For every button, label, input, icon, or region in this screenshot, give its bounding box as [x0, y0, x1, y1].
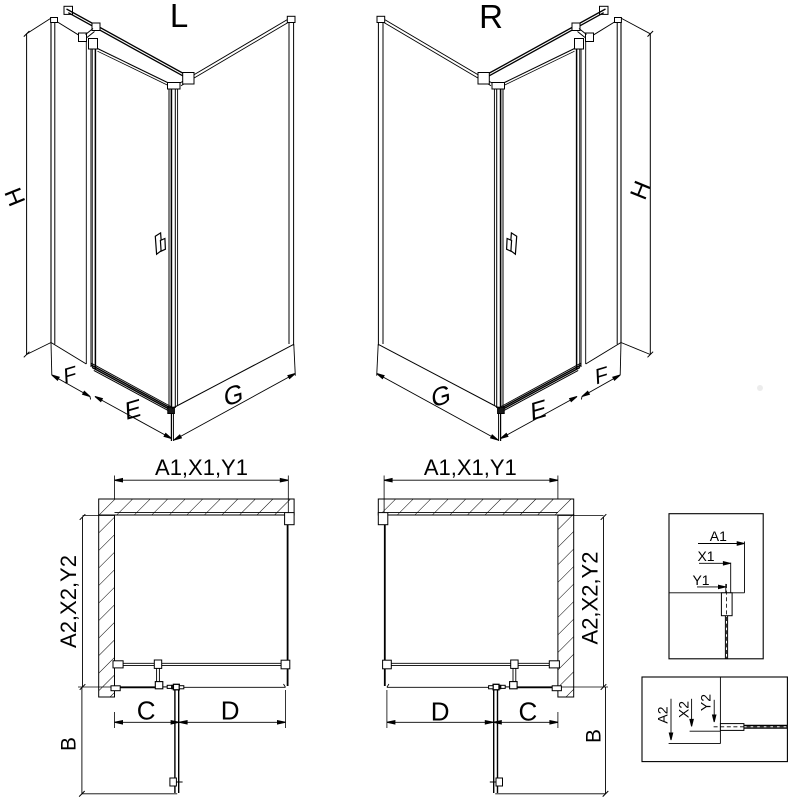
svg-text:X2: X2 [676, 701, 692, 718]
svg-text:F: F [595, 361, 609, 390]
svg-text:B: B [58, 737, 81, 751]
svg-text:D: D [221, 696, 240, 726]
svg-text:A2,X2,Y2: A2,X2,Y2 [577, 552, 602, 645]
svg-text:A1,X1,Y1: A1,X1,Y1 [424, 455, 517, 480]
svg-text:A2: A2 [655, 706, 671, 723]
svg-text:X1: X1 [697, 548, 714, 564]
svg-text:L: L [170, 0, 188, 34]
svg-text:B: B [583, 729, 606, 743]
svg-text:C: C [519, 697, 538, 727]
svg-text:Y1: Y1 [692, 572, 709, 588]
svg-text:A1,X1,Y1: A1,X1,Y1 [155, 455, 248, 480]
svg-text:G: G [431, 380, 452, 414]
svg-text:A2,X2,Y2: A2,X2,Y2 [56, 555, 81, 648]
svg-text:C: C [137, 696, 156, 726]
svg-text:E: E [124, 393, 141, 426]
svg-text:E: E [530, 394, 547, 427]
svg-text:R: R [479, 0, 503, 35]
svg-text:G: G [223, 379, 244, 413]
svg-text:A1: A1 [710, 528, 727, 544]
svg-text:F: F [63, 360, 77, 389]
svg-text:Y2: Y2 [698, 694, 714, 711]
svg-text:D: D [431, 697, 450, 727]
